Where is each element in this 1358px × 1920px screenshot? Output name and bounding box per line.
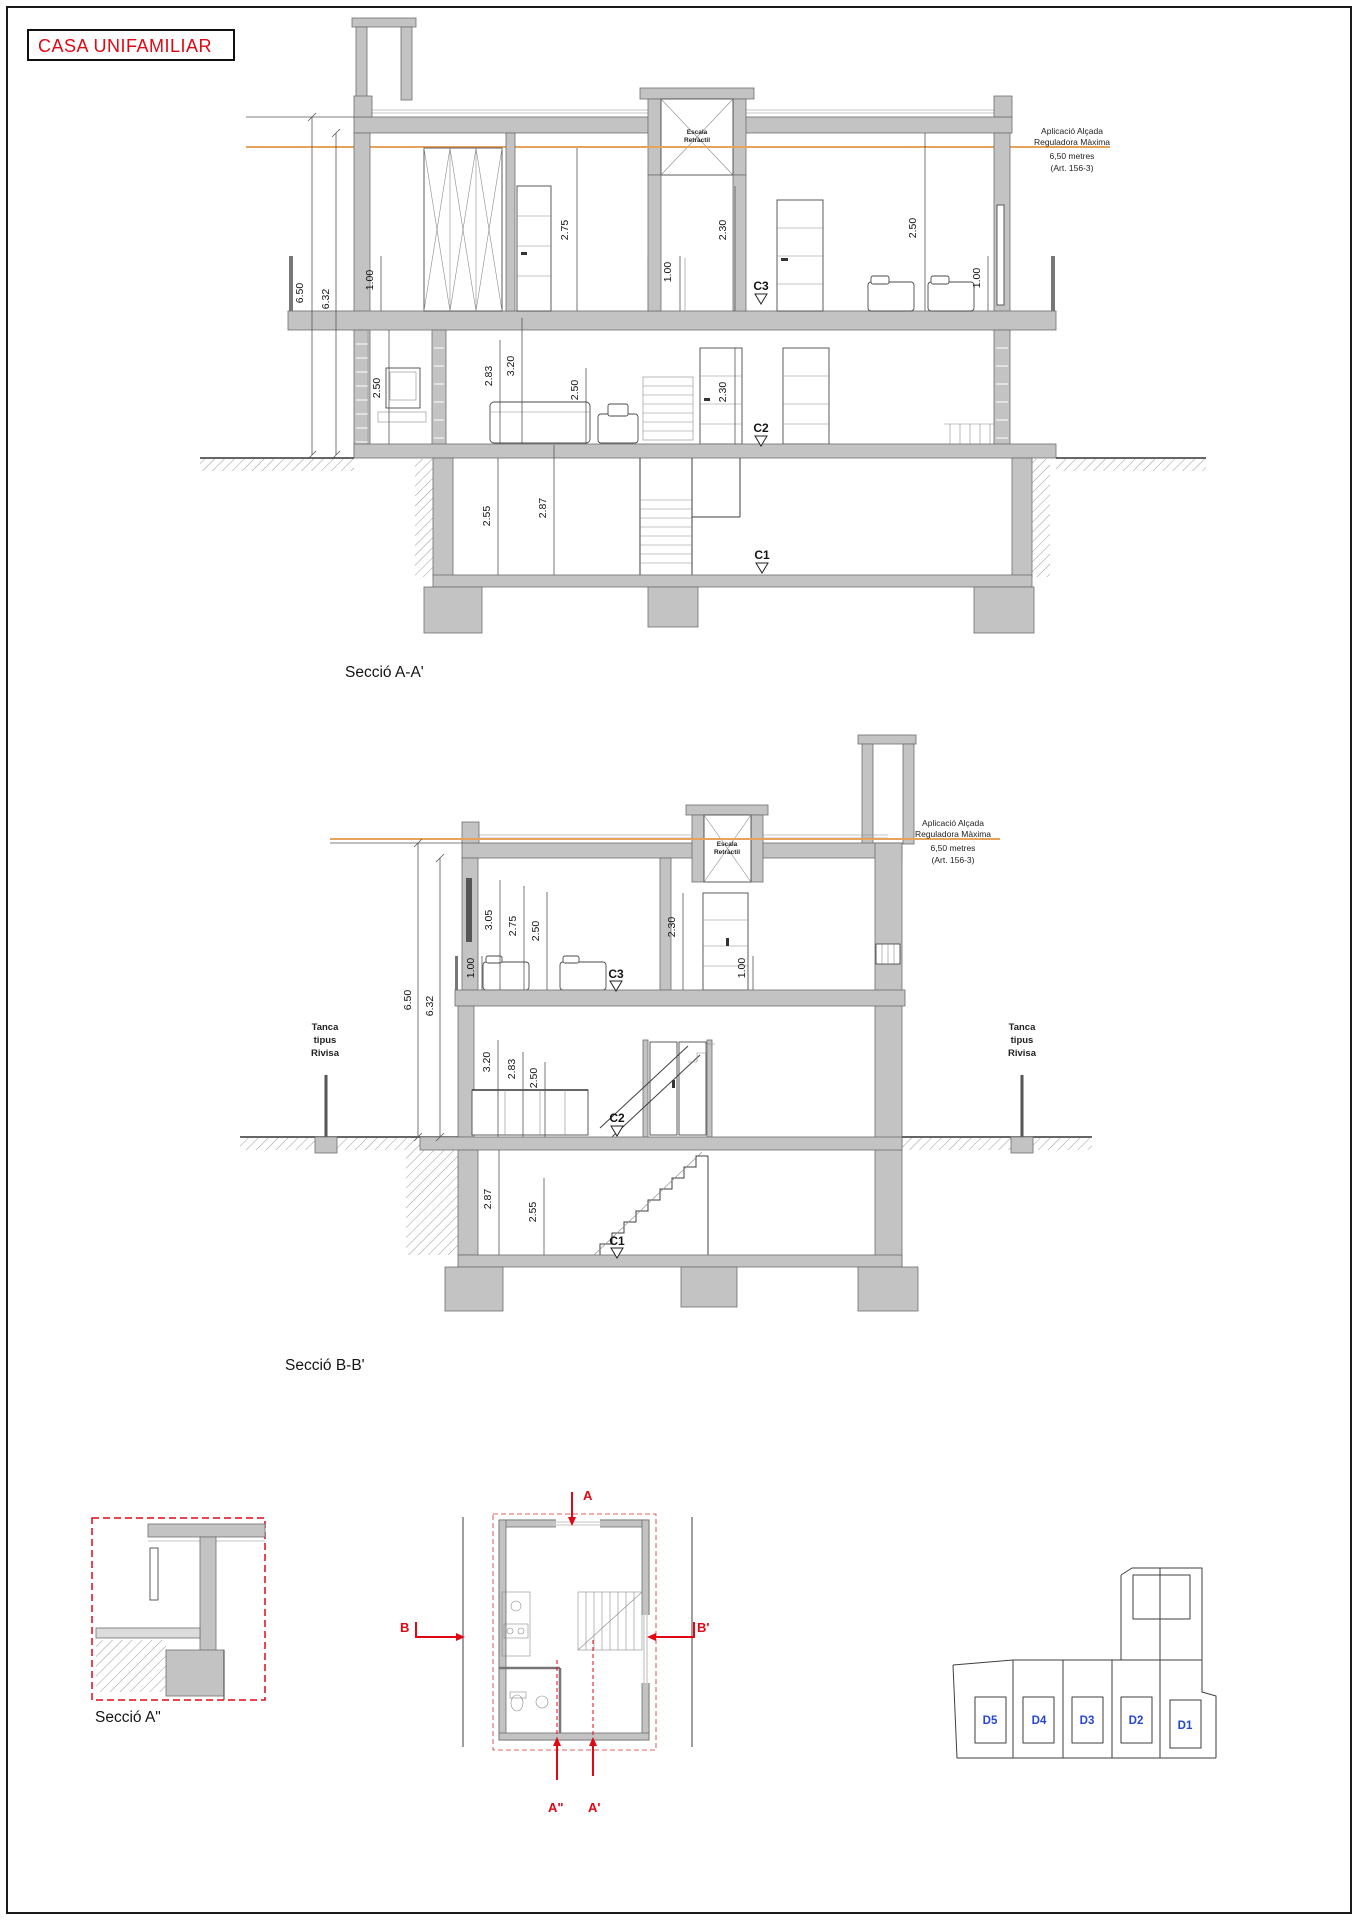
door xyxy=(783,348,829,444)
beds xyxy=(868,276,974,311)
plot-label-d1: D1 xyxy=(1178,1720,1193,1732)
double-door xyxy=(643,1040,712,1137)
page-title: CASA UNIFAMILIAR xyxy=(38,36,212,56)
dim-label: 6.50 xyxy=(294,283,306,304)
existing-building xyxy=(1133,1575,1190,1619)
earth-hatch xyxy=(96,1640,166,1692)
dim-label: 2.75 xyxy=(507,916,519,937)
dim-label: 2.50 xyxy=(528,1068,540,1089)
dim-label: 1.00 xyxy=(971,268,983,289)
marker-b-prime: B' xyxy=(697,1620,709,1635)
title-block: CASA UNIFAMILIAR xyxy=(28,30,234,60)
level-label-c2: C2 xyxy=(753,421,769,435)
earth-hatch xyxy=(200,459,354,471)
floor-plan: A B B' A" A' xyxy=(400,1488,709,1815)
dim-label: 1.00 xyxy=(736,958,748,979)
dim-label: 2.50 xyxy=(530,921,542,942)
dim-label: 1.00 xyxy=(465,958,477,979)
kitchen-counter xyxy=(472,1090,588,1135)
porch-steps xyxy=(944,424,994,444)
level-label-c3: C3 xyxy=(608,967,624,981)
fence-line: Tanca xyxy=(312,1022,339,1033)
dim-label: 2.30 xyxy=(717,382,729,403)
annotation-line: Reguladora Màxima xyxy=(1034,137,1110,147)
earth-hatch xyxy=(1056,459,1206,471)
earth-hatch xyxy=(902,1138,1092,1150)
dim-label: 1.00 xyxy=(364,270,376,291)
dim-label: 2.87 xyxy=(482,1189,494,1210)
dim-label: 2.87 xyxy=(537,498,549,519)
wardrobe xyxy=(424,148,502,311)
beds xyxy=(483,956,606,990)
dim-label: 6.50 xyxy=(402,990,414,1011)
dim-label: 2.75 xyxy=(559,220,571,241)
annotation-line: 6,50 metres xyxy=(931,843,976,853)
sofa xyxy=(490,402,638,443)
fence-left xyxy=(315,1075,337,1153)
marker-a: A xyxy=(583,1488,593,1503)
elevator-label: Retràctil xyxy=(684,137,710,144)
level-marker-icon xyxy=(756,563,768,573)
fence-line: Rivisa xyxy=(1008,1048,1037,1059)
drawing-sheet: CASA UNIFAMILIAR xyxy=(0,0,1358,1920)
dim-label: 2.83 xyxy=(506,1059,518,1080)
sheet-svg: CASA UNIFAMILIAR xyxy=(0,0,1358,1920)
dim-label: 3.20 xyxy=(505,356,517,377)
dim-label: 6.32 xyxy=(424,996,436,1017)
dim-label: 3.05 xyxy=(483,910,495,931)
door xyxy=(517,186,551,311)
annotation-line: Aplicació Alçada xyxy=(922,818,984,828)
fence-line: Rivisa xyxy=(311,1048,340,1059)
section-cut-b: B xyxy=(400,1620,465,1641)
section-bb: 6.50 6.32 1.00 3.05 2.75 2.50 2.30 1.00 … xyxy=(240,735,1092,1374)
dim-label: 2.83 xyxy=(483,366,495,387)
site-plan: D5 D4 D3 D2 D1 xyxy=(953,1568,1216,1758)
level-label-c1: C1 xyxy=(609,1234,625,1248)
plot-label-d3: D3 xyxy=(1080,1715,1095,1727)
section-a2-caption: Secció A" xyxy=(95,1709,161,1726)
marker-b: B xyxy=(400,1620,409,1635)
section-cut-a-prime: A' xyxy=(588,1737,600,1815)
annotation-line: 6,50 metres xyxy=(1050,151,1095,161)
elevator-label: Escala xyxy=(717,841,738,848)
dim-label: 2.30 xyxy=(717,220,729,241)
dim-label: 2.55 xyxy=(481,506,493,527)
dim-label: 1.00 xyxy=(662,262,674,283)
height-annotation: Aplicació Alçada Reguladora Màxima 6,50 … xyxy=(1034,126,1110,173)
plot-label-d2: D2 xyxy=(1129,1715,1144,1727)
fence-line: tipus xyxy=(1011,1035,1034,1046)
level-label-c2: C2 xyxy=(609,1111,625,1125)
elevator-label: Escala xyxy=(687,129,708,136)
dim-label: 2.50 xyxy=(371,378,383,399)
plot-label-d4: D4 xyxy=(1032,1715,1047,1727)
height-annotation: Aplicació Alçada Reguladora Màxima 6,50 … xyxy=(915,818,991,865)
marker-a-prime: A' xyxy=(588,1800,600,1815)
level-marker-icon xyxy=(610,981,622,991)
dim-label: 2.30 xyxy=(666,917,678,938)
dim-label: 3.20 xyxy=(481,1052,493,1073)
dim-label: 2.50 xyxy=(907,218,919,239)
fence-label-left: Tanca tipus Rivisa xyxy=(311,1022,340,1059)
dim-label: 2.50 xyxy=(569,380,581,401)
dim-label: 2.55 xyxy=(527,1202,539,1223)
fence-right xyxy=(1011,1075,1033,1153)
section-aa: 6.50 6.32 1.00 2.75 1.00 2.30 2.50 1.00 … xyxy=(200,18,1206,681)
annotation-line: Reguladora Màxima xyxy=(915,829,991,839)
level-label-c1: C1 xyxy=(754,548,770,562)
section-cut-a-dbl: A" xyxy=(548,1737,564,1815)
fence-line: tipus xyxy=(314,1035,337,1046)
elevator-label: Retràctil xyxy=(714,849,740,856)
annotation-line: Aplicació Alçada xyxy=(1041,126,1103,136)
annotation-line: (Art. 156-3) xyxy=(1051,163,1094,173)
level-marker-icon xyxy=(755,294,767,304)
basement-stairs xyxy=(640,458,740,575)
annotation-line: (Art. 156-3) xyxy=(932,855,975,865)
gf-walls xyxy=(354,330,1010,455)
marker-a-dbl: A" xyxy=(548,1800,564,1815)
dim-label: 6.32 xyxy=(320,289,332,310)
fence-label-right: Tanca tipus Rivisa xyxy=(1008,1022,1037,1059)
section-aa-caption: Secció A-A' xyxy=(345,664,424,681)
section-bb-caption: Secció B-B' xyxy=(285,1357,365,1374)
plot-label-d5: D5 xyxy=(983,1715,998,1727)
section-a2-detail: Secció A" xyxy=(92,1518,265,1726)
stair-rail xyxy=(643,377,693,440)
door xyxy=(777,200,823,311)
level-marker-icon xyxy=(611,1126,623,1136)
level-label-c3: C3 xyxy=(753,279,769,293)
fence-line: Tanca xyxy=(1009,1022,1036,1033)
